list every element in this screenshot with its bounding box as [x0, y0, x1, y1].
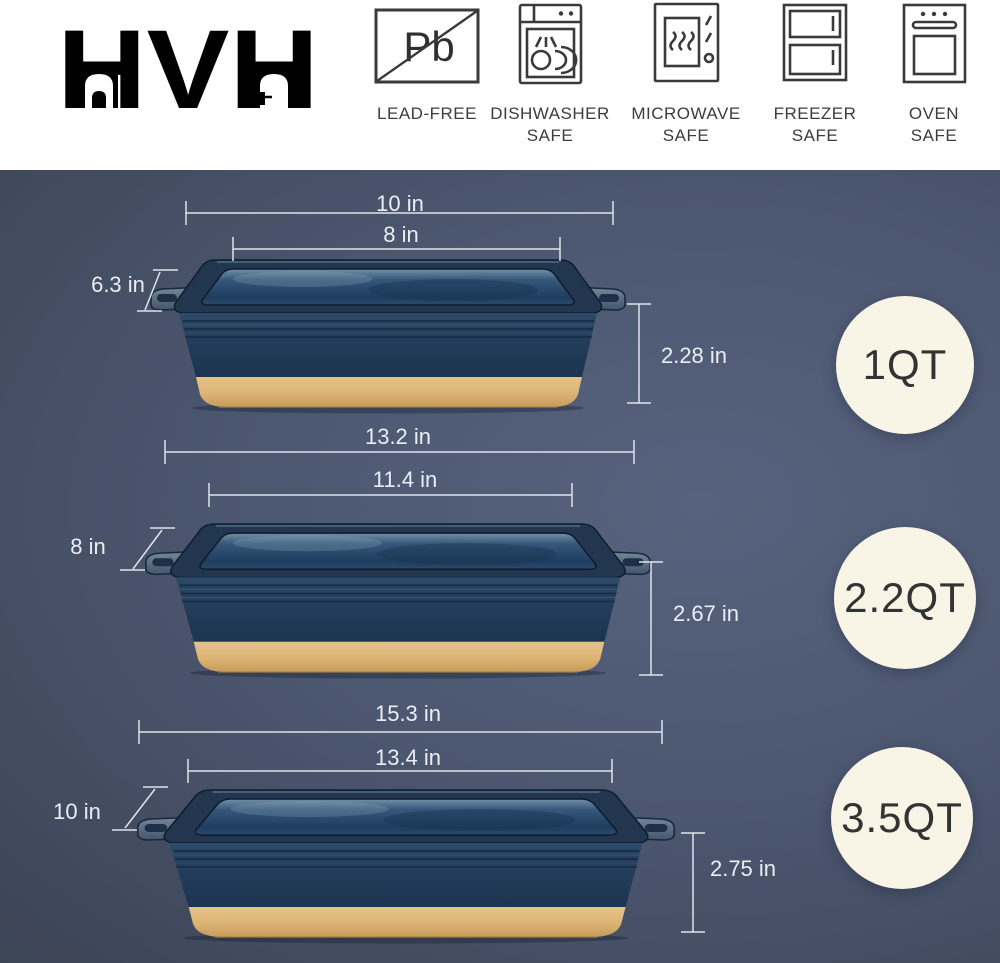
capacity-badge-1qt: 1QT	[836, 296, 974, 434]
logo-door	[260, 92, 265, 105]
header: HVH Pb LEAD-FREE	[0, 0, 1000, 170]
brand-logo: HVH	[55, 22, 323, 122]
microwave-icon	[611, 2, 761, 88]
dim-dish3-outer-length: 15.3 in	[139, 701, 662, 744]
dish3-height-label: 2.75 in	[710, 856, 776, 881]
dish3-outer-length-label: 15.3 in	[375, 701, 441, 726]
dishwasher-icon	[475, 3, 625, 90]
badge-microwave-safe: MICROWAVE SAFE	[611, 0, 761, 170]
dish2-width-label: 8 in	[70, 534, 105, 559]
dim-dish3-height: 2.75 in	[681, 833, 776, 932]
lead-symbol: Pb	[403, 23, 454, 70]
capacity-badge-2-2qt: 2.2QT	[834, 527, 976, 669]
product-infographic: HVH Pb LEAD-FREE	[0, 0, 1000, 963]
dish1-inner-length-label: 8 in	[383, 222, 418, 247]
badge-label: SAFE	[859, 126, 1000, 146]
capacity-label: 1QT	[863, 341, 948, 389]
badge-label: OVEN	[859, 104, 1000, 124]
dish2-height-label: 2.67 in	[673, 601, 739, 626]
baking-dish-2	[146, 524, 650, 679]
badge-dishwasher-safe: DISHWASHER SAFE	[475, 0, 625, 170]
dish3-width-label: 10 in	[53, 799, 101, 824]
dish3-inner-length-label: 13.4 in	[375, 745, 441, 770]
oven-icon	[859, 3, 1000, 89]
dim-dish1-height: 2.28 in	[627, 304, 727, 403]
product-display-area: 10 in 8 in 6.3 in 2.28 in	[0, 170, 1000, 963]
badge-label: SAFE	[475, 126, 625, 146]
logo-arch-figure	[92, 91, 106, 108]
baking-dish-1	[151, 260, 625, 414]
dish1-height-label: 2.28 in	[661, 343, 727, 368]
dim-dish1-outer-length: 10 in	[186, 191, 613, 225]
dim-dish2-height: 2.67 in	[639, 562, 739, 675]
badge-label: MICROWAVE	[611, 104, 761, 124]
capacity-label: 2.2QT	[844, 574, 966, 622]
dim-dish1-inner-length: 8 in	[233, 222, 560, 261]
baking-dish-3	[138, 790, 675, 944]
capacity-label: 3.5QT	[841, 794, 963, 842]
dish2-inner-length-label: 11.4 in	[373, 467, 437, 492]
badge-label: DISHWASHER	[475, 104, 625, 124]
badge-label: SAFE	[611, 126, 761, 146]
dish1-width-label: 6.3 in	[91, 272, 145, 297]
badge-oven-safe: OVEN SAFE	[859, 0, 1000, 170]
dim-dish2-inner-length: 11.4 in	[209, 467, 572, 507]
dim-dish2-outer-length: 13.2 in	[165, 424, 634, 464]
capacity-badge-3-5qt: 3.5QT	[831, 747, 973, 889]
dish2-outer-length-label: 13.2 in	[365, 424, 431, 449]
dim-dish3-inner-length: 13.4 in	[188, 745, 612, 783]
